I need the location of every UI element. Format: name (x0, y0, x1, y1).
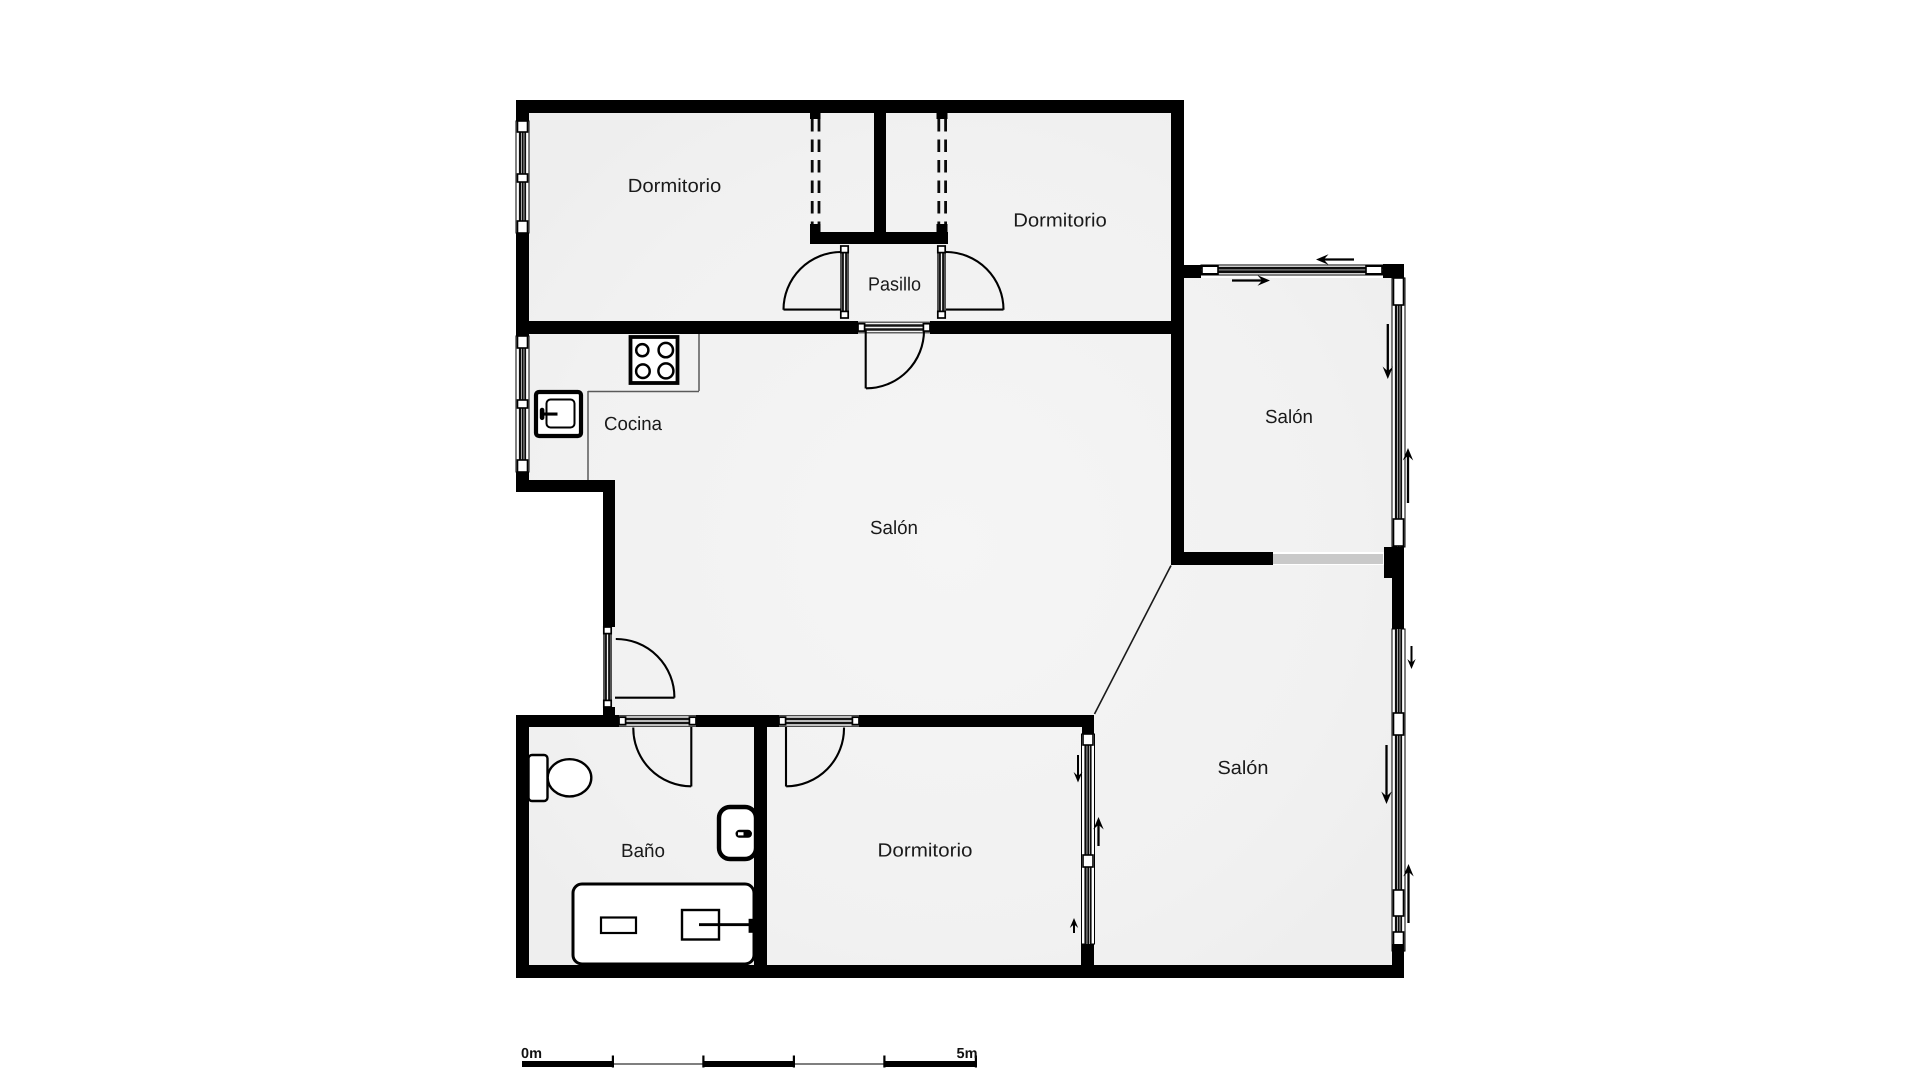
svg-text:5m: 5m (957, 1046, 978, 1062)
svg-text:Salón: Salón (1218, 758, 1269, 779)
svg-text:Baño: Baño (621, 841, 665, 862)
svg-text:Dormitorio: Dormitorio (628, 176, 722, 197)
svg-text:Salón: Salón (1265, 407, 1313, 428)
svg-text:Cocina: Cocina (604, 414, 662, 435)
svg-text:Dormitorio: Dormitorio (878, 841, 973, 862)
svg-text:Dormitorio: Dormitorio (1013, 211, 1107, 232)
svg-text:Pasillo: Pasillo (868, 275, 921, 296)
svg-text:Salón: Salón (870, 518, 918, 539)
svg-text:0m: 0m (521, 1046, 542, 1062)
